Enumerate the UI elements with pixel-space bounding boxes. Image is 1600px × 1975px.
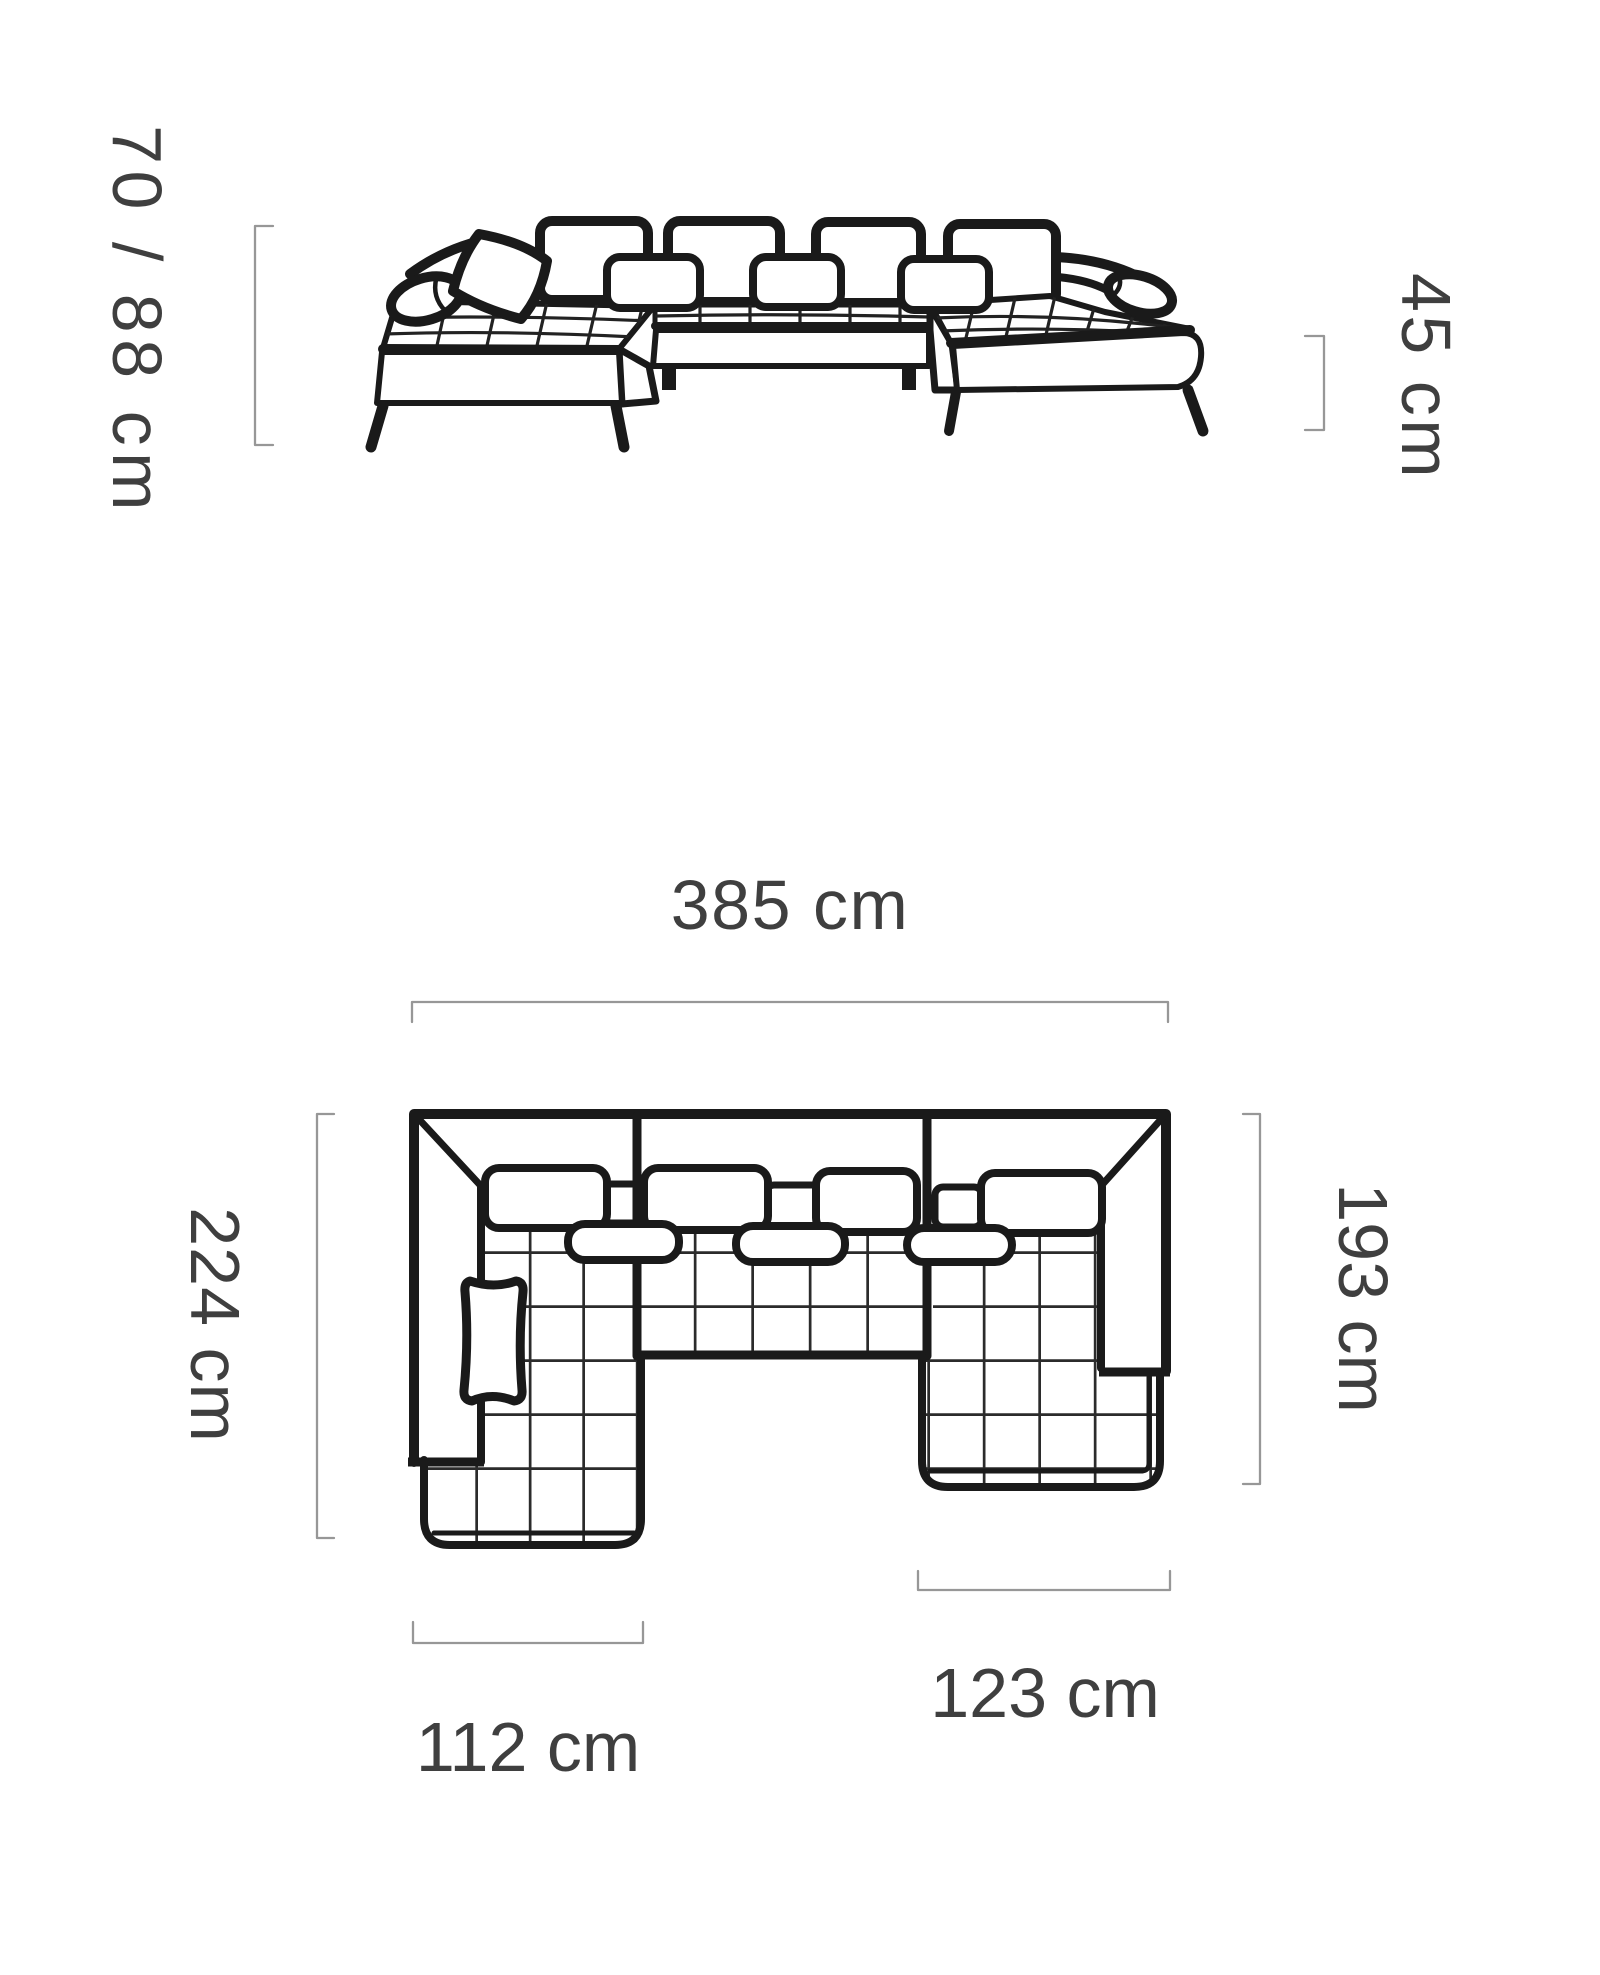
svg-text:123 cm: 123 cm: [930, 1654, 1160, 1732]
svg-text:45 cm: 45 cm: [1387, 273, 1465, 481]
svg-text:224 cm: 224 cm: [176, 1207, 254, 1443]
svg-text:385 cm: 385 cm: [671, 866, 910, 944]
svg-text:193 cm: 193 cm: [1324, 1183, 1402, 1413]
svg-text:112 cm: 112 cm: [416, 1708, 640, 1786]
svg-text:70 / 88 cm: 70 / 88 cm: [98, 125, 176, 517]
